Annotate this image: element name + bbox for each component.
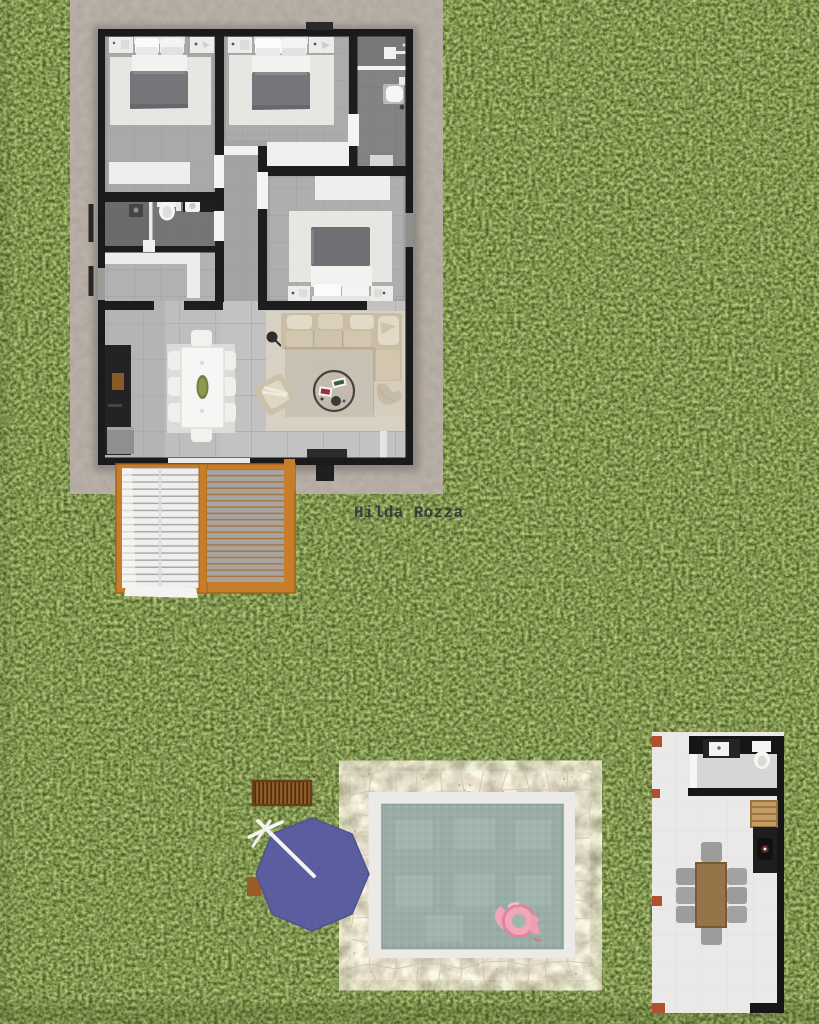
- svg-text:Hilda Rozza: Hilda Rozza: [354, 504, 464, 522]
